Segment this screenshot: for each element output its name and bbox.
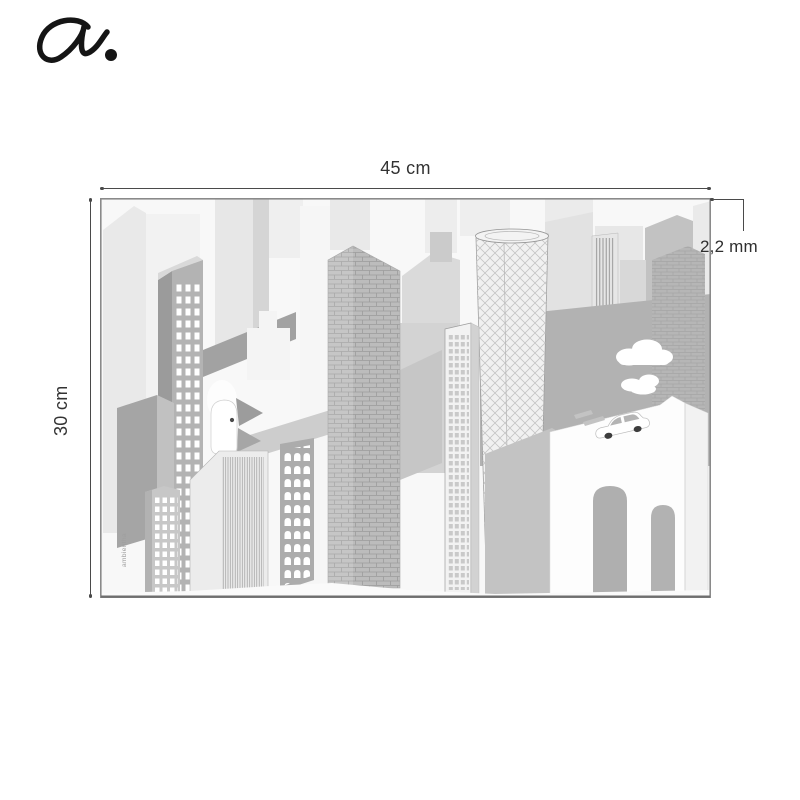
height-dim-bottom-dot <box>89 594 93 598</box>
product-dimension-page: ambientha 45 cm 30 cm 2,2 mm <box>0 0 800 800</box>
height-dim-top-dot <box>89 198 93 202</box>
thickness-dim-vline <box>743 199 744 231</box>
arch-window-building <box>280 438 314 591</box>
width-dim-right-dot <box>707 187 711 191</box>
watermark-text: ambientha <box>121 533 128 567</box>
striped-building <box>190 451 268 595</box>
height-dimension-line <box>90 201 91 595</box>
width-dim-left-dot <box>100 187 104 191</box>
striped-top-tower <box>592 233 618 313</box>
placemat-city-artwork: ambientha <box>100 198 711 598</box>
height-label: 30 cm <box>52 364 70 436</box>
width-label: 45 cm <box>100 158 711 179</box>
width-dimension-line <box>102 188 708 189</box>
brick-tower <box>328 246 400 588</box>
small-window-tower <box>145 486 180 598</box>
narrow-window-tower <box>445 323 479 598</box>
thickness-dim-hline <box>714 199 744 200</box>
brand-logo-a-icon <box>28 14 120 68</box>
thickness-label: 2,2 mm <box>700 237 780 257</box>
textured-right-building <box>652 246 705 410</box>
